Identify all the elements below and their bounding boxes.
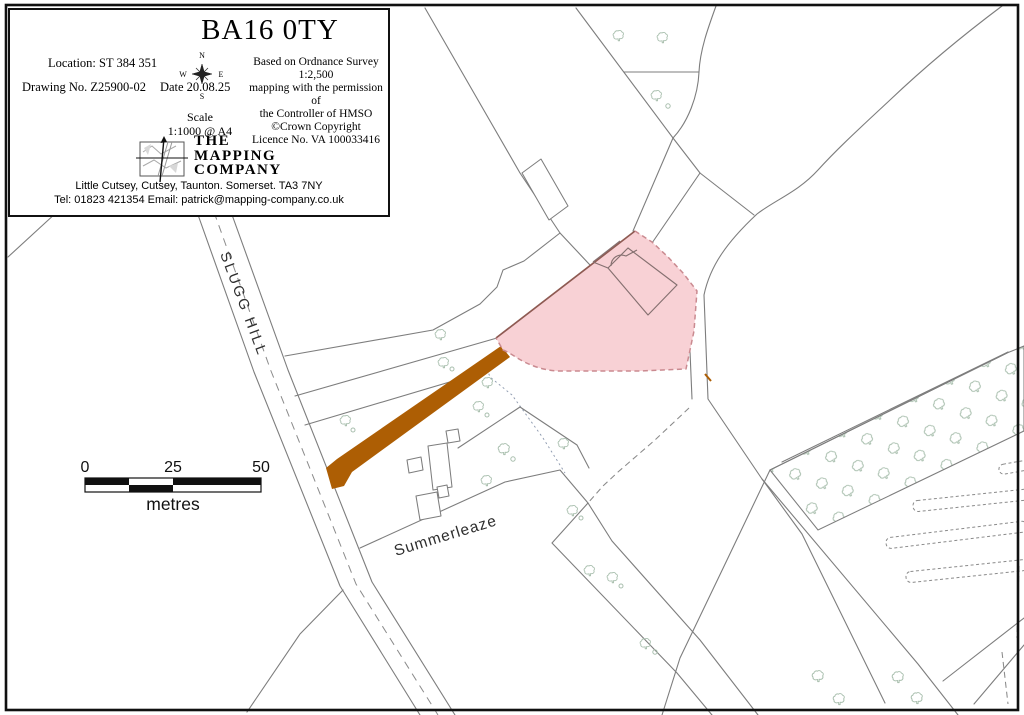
shrub-icon — [511, 457, 515, 461]
postcode-title: BA16 0TY — [160, 14, 380, 47]
compass-w: W — [179, 70, 187, 79]
title-block: BA16 0TY Location: ST 384 351 Drawing No… — [8, 8, 390, 217]
place-label: Summerleaze — [392, 512, 499, 559]
scale-bar-segment — [85, 478, 129, 485]
location-ref: Location: ST 384 351 — [48, 56, 157, 71]
site-area — [496, 231, 697, 371]
company-line: THE — [194, 134, 282, 149]
boundary-line — [247, 590, 343, 712]
scale-bar-segment — [129, 485, 173, 492]
tree-icon — [613, 30, 623, 40]
os-line: ©Crown Copyright — [246, 121, 386, 134]
tree-icon — [911, 693, 922, 704]
tree-icon — [473, 401, 483, 411]
tree-icon — [651, 90, 661, 100]
tree-icon — [584, 565, 594, 575]
shrub-icon — [579, 516, 583, 520]
os-line: mapping with the permission of — [246, 82, 386, 108]
tree-icon — [498, 444, 509, 455]
tree-icon — [657, 32, 667, 42]
location-plan-page: SLUGG HILL — [0, 0, 1024, 715]
building — [428, 443, 452, 490]
polytunnel-outline — [912, 489, 1024, 512]
shrub-icon — [485, 413, 489, 417]
building — [416, 492, 441, 520]
boundary-line — [700, 173, 754, 215]
company-contact: Tel: 01823 421354 Email: patrick@mapping… — [10, 194, 388, 206]
company-name: THE MAPPING COMPANY — [194, 134, 282, 178]
tree-icon — [567, 505, 577, 515]
lane-edge — [552, 503, 712, 715]
shrub-icon — [666, 104, 670, 108]
shrub-icon — [450, 367, 454, 371]
scale-bar: 0 25 50 metres — [81, 459, 270, 514]
company-address: Little Cutsey, Cutsey, Taunton. Somerset… — [10, 180, 388, 192]
scale-label: Scale — [148, 110, 252, 124]
tree-icon — [481, 475, 491, 485]
shrub-icon — [351, 428, 355, 432]
tree-icon — [340, 415, 350, 425]
os-line: the Controller of HMSO — [246, 108, 386, 121]
building — [437, 485, 449, 498]
compass-n: N — [199, 51, 205, 60]
company-logo — [136, 136, 190, 184]
boundary-line — [425, 8, 590, 265]
lane-edge — [633, 138, 673, 231]
building — [446, 429, 460, 443]
building — [407, 457, 423, 473]
scale-tick-50: 50 — [252, 459, 270, 476]
compass-s: S — [200, 92, 204, 101]
polytunnel-outline — [905, 559, 1024, 583]
tree-icon — [607, 572, 617, 582]
tree-icon — [435, 329, 445, 339]
boundary-line — [943, 618, 1024, 681]
polytunnel-outline — [998, 459, 1024, 475]
tree-icon — [482, 377, 492, 387]
os-line: Based on Ordnance Survey 1:2,500 — [246, 56, 386, 82]
tree-icon — [892, 672, 903, 683]
boundary-line — [576, 8, 673, 138]
compass-e: E — [219, 70, 224, 79]
shrub-icon — [619, 584, 623, 588]
tree-icon — [438, 357, 448, 367]
company-line: MAPPING — [194, 149, 282, 164]
boundary-line — [704, 6, 1002, 715]
polytunnel-outline — [885, 521, 1024, 549]
orchard — [770, 346, 1024, 530]
boundary-dashed — [588, 408, 689, 503]
boundary-line — [458, 407, 589, 468]
orchard-area — [770, 346, 1024, 530]
outbuilding — [522, 159, 568, 220]
road-centerline — [214, 212, 438, 715]
boundary-line — [673, 138, 700, 173]
compass-rose-icon: N S E W — [176, 46, 228, 104]
lane-edge — [588, 503, 758, 715]
tree-icon — [812, 671, 823, 682]
tree-icon — [558, 438, 568, 448]
site-polygon — [496, 231, 697, 371]
scale-bar-segment — [173, 478, 261, 485]
drawing-number: Drawing No. Z25900-02 — [22, 80, 146, 94]
lane-edge — [652, 173, 700, 243]
boundary-line — [974, 645, 1024, 704]
boundary-line — [8, 212, 57, 257]
track-tick — [705, 374, 711, 381]
boundary-dashed — [1002, 652, 1008, 704]
scale-tick-25: 25 — [164, 459, 182, 476]
tree-icon — [833, 694, 844, 705]
scale-tick-0: 0 — [81, 459, 90, 476]
company-line: COMPANY — [194, 163, 282, 178]
scale-unit-label: metres — [146, 494, 200, 514]
